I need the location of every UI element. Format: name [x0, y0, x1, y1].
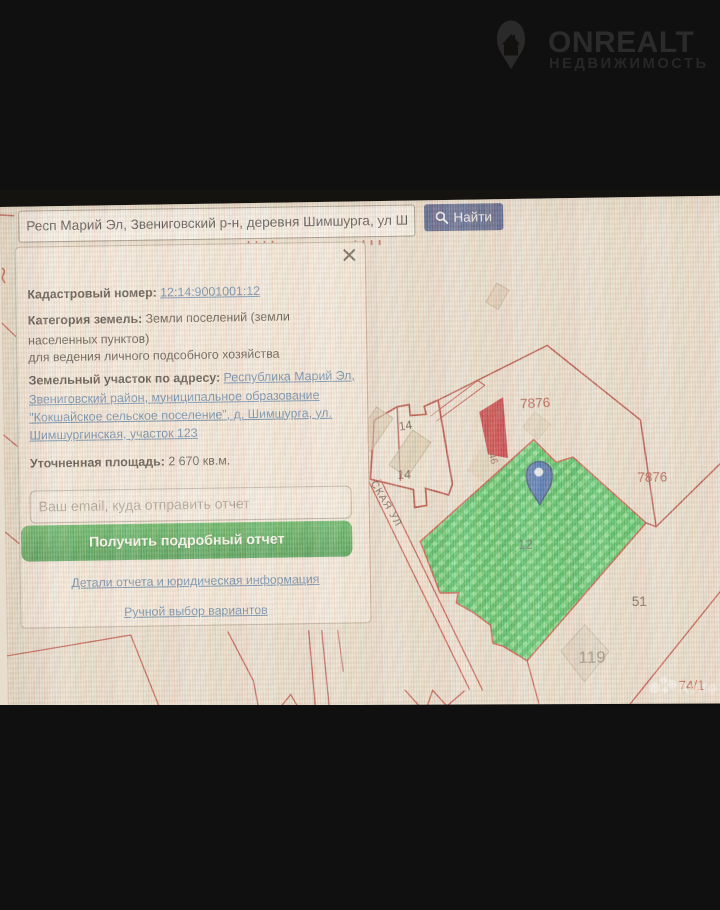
svg-text:7876: 7876	[520, 395, 551, 412]
svg-text:7876: 7876	[637, 470, 667, 485]
svg-text:12: 12	[518, 537, 533, 552]
svg-text:51: 51	[632, 594, 647, 609]
svg-text:14: 14	[397, 468, 411, 482]
svg-text:14: 14	[398, 418, 414, 434]
svg-text:119: 119	[578, 648, 605, 667]
